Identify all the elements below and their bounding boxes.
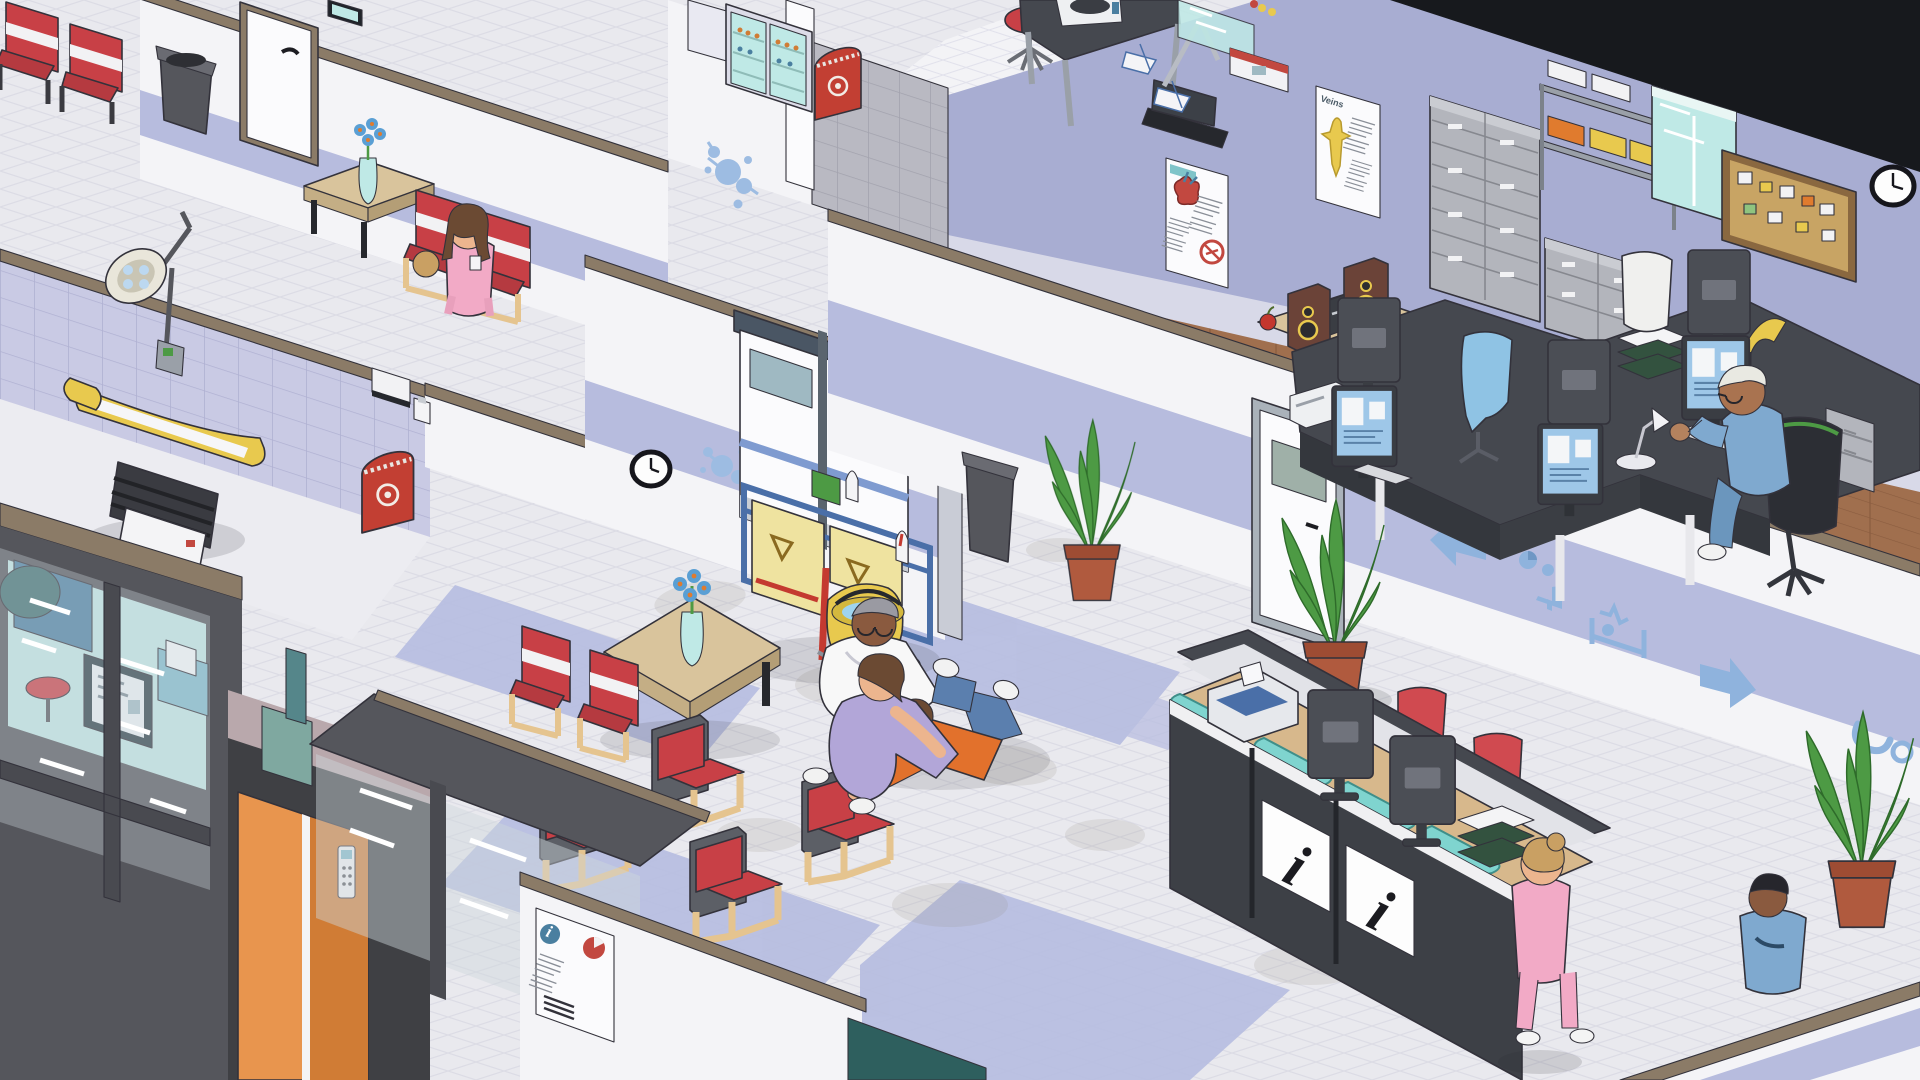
heart-anatomy-poster [1162, 158, 1228, 288]
veins-anatomy-poster: Veins [1316, 86, 1380, 218]
trash-bin-waiting[interactable] [962, 452, 1018, 562]
monitor-pair-mid[interactable] [1538, 340, 1610, 516]
door-upper-corridor[interactable] [240, 2, 318, 166]
hospital-isometric-scene: Veins [0, 0, 1920, 1080]
game-viewport: Veins [0, 0, 1920, 1080]
visitor-partial[interactable] [413, 251, 439, 277]
wall-clock-waiting [632, 452, 670, 486]
file-cabinet-tall[interactable] [1430, 96, 1540, 322]
office-chair-white[interactable] [1622, 252, 1672, 332]
wall-clock-office [1872, 167, 1914, 205]
biohazard-bin-lab[interactable] [815, 48, 861, 120]
seated-woman-pink[interactable] [442, 204, 494, 316]
biohazard-bin-exam[interactable] [362, 452, 414, 533]
